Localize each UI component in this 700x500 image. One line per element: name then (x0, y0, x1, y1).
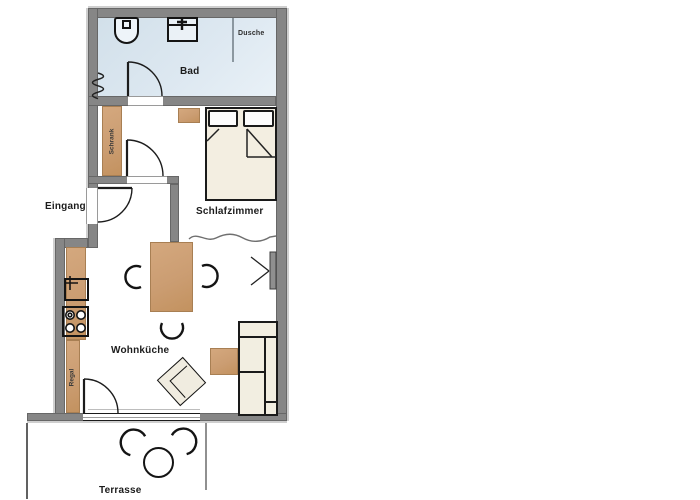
kitchen-sink (64, 278, 89, 301)
room-label-schlafzimmer: Schlafzimmer (196, 206, 263, 217)
wardrobe-label: Schrank (102, 112, 122, 170)
dining-table (150, 242, 193, 312)
window-tilt-icon (251, 252, 276, 289)
door-bedroom (127, 140, 163, 176)
floorplan: Dusche Bad Schrank Schlafzimmer Eingang … (0, 0, 700, 500)
door-opening-bathroom (128, 96, 163, 106)
pillow-left (208, 110, 238, 127)
terrace-table (143, 447, 174, 478)
room-label-wohnkueche: Wohnküche (111, 345, 169, 356)
curtain-divider-line (189, 234, 276, 241)
shelf-label: Regal (64, 352, 80, 402)
dresser (178, 108, 200, 123)
room-label-eingang: Eingang (45, 201, 86, 212)
room-label-bad: Bad (180, 66, 200, 77)
stove (62, 306, 89, 337)
door-opening-bedroom (127, 176, 167, 184)
door-entrance (98, 188, 132, 222)
room-label-dusche: Dusche (238, 30, 265, 37)
window-sill-line (88, 409, 200, 410)
wall-stub-vertical (170, 184, 179, 242)
side-table (210, 348, 238, 375)
pillow-right (243, 110, 274, 127)
room-label-terrasse: Terrasse (99, 485, 142, 496)
door-terrace (84, 379, 118, 413)
door-opening-entrance (86, 188, 98, 224)
armchair (157, 357, 206, 406)
washbasin-icon (167, 17, 198, 42)
wall-bathroom-south (88, 96, 276, 106)
window-terrace-band (83, 413, 200, 421)
toilet-icon (114, 17, 139, 44)
sofa (238, 321, 278, 416)
